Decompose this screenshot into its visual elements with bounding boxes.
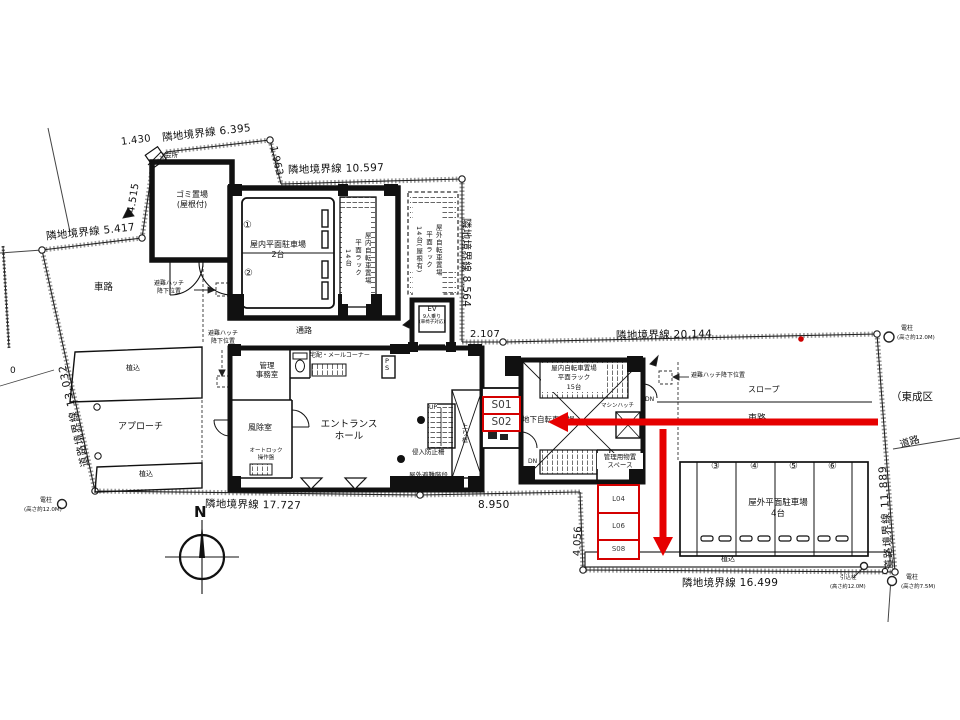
red-dot-marker: [798, 336, 804, 342]
hatch-drop-label-a: 避難ハッチ降下位置: [149, 280, 189, 295]
intrusion-fence-label: 侵入防止柵: [412, 448, 445, 456]
service-pole-height: (高さ約12.0M): [830, 584, 866, 591]
boundary-label-16499: 隣地境界線 16.499: [682, 577, 778, 590]
boundary-label-10597: 隣地境界線 10.597: [288, 162, 384, 178]
bicycle-15-label: 屋内自転車置場平面ラック15台: [541, 364, 607, 392]
dn-label-stair: DN: [528, 458, 537, 466]
planting-label-3: 植込: [721, 555, 735, 564]
pole-height-bottomright: (高さ約7.5M): [901, 584, 935, 591]
stall-number-5: ⑤: [789, 461, 798, 474]
escape-stair-label: 屋外避難階段: [409, 471, 448, 479]
pole-label-left: 電柱: [40, 497, 52, 505]
hatch-drop-label-c: 避難ハッチ降下位置: [691, 372, 745, 380]
pole-label-topright: 電柱: [901, 325, 913, 333]
boundary-label-20144: 隣地境界線 20.144: [616, 328, 712, 343]
marker-label-s08[interactable]: S08: [598, 540, 639, 559]
marker-label-s02[interactable]: S02: [483, 414, 520, 431]
planting-label-2: 植込: [139, 470, 153, 479]
entry-step-label: 上り框: [460, 423, 468, 453]
pole-height-left: (高さ約12.0M): [24, 507, 62, 514]
red-arrow-vertical-head: [653, 537, 673, 556]
boundary-label-17727: 隣地境界線 17.727: [205, 498, 301, 513]
floor-plan-linework: 地下自転車置場 車路: [0, 0, 960, 720]
outdoor-bicycle-label: 屋外自転車置場平面ラック14台(屋根有): [413, 205, 442, 295]
trash-room-label: ゴミ置場(屋根付): [164, 190, 220, 210]
up-stair-label: UP: [429, 404, 437, 412]
indoor-bicycle-label: 屋内自転車置場平面ラック14台: [342, 212, 371, 304]
service-pole-label: 引込柱: [840, 575, 857, 582]
trash-room: [145, 147, 232, 295]
slope-label: スロープ: [748, 385, 780, 395]
junction-box-label: 会所: [165, 151, 178, 159]
pole-height-topright: (高さ約12.0M): [897, 335, 935, 342]
pipe-shaft-label: PS: [385, 358, 393, 372]
planting-label-1: 植込: [126, 364, 140, 373]
compass-icon: [165, 520, 239, 594]
dim-label-8950: 8.950: [478, 499, 510, 512]
hatch-drop-label-b: 避難ハッチ降下位置: [203, 330, 243, 345]
compass-north-label: N: [194, 503, 207, 522]
stall-number-4: ④: [750, 461, 759, 474]
marker-label-l06[interactable]: L06: [598, 513, 639, 540]
approach-label: アプローチ: [118, 422, 163, 433]
stall-number-3: ③: [711, 461, 720, 474]
corridor-label: 通路: [296, 326, 312, 336]
floor-plan-canvas: 地下自転車置場 車路 隣地境界線 6.395 1.430 1.963 隣地境界線…: [0, 0, 960, 720]
outdoor-parking-label: 屋外平面駐車場4台: [728, 498, 828, 519]
marker-label-s01[interactable]: S01: [483, 397, 520, 414]
stall-number-6: ⑥: [828, 461, 837, 474]
dim-label-4056: 4.056: [572, 526, 586, 557]
marker-label-l04[interactable]: L04: [598, 485, 639, 513]
dim-label-2107: 2.107: [470, 329, 500, 342]
autolock-label: オートロック操作盤: [246, 448, 286, 462]
windbreak-room-label: 風除室: [248, 423, 272, 433]
storage-space-label: 管理用物置スペース: [597, 453, 643, 469]
stall-number-2: ②: [244, 268, 253, 281]
stall-number-1: ①: [243, 220, 252, 233]
elevator-label: EV9人乗り(車椅子対応): [414, 305, 450, 326]
entrance-hall-label: エントランスホール: [319, 419, 379, 443]
manager-office-label: 管理事務室: [246, 361, 288, 380]
pole-label-bottomright: 電柱: [906, 574, 918, 582]
ward-road-label: （東成区: [891, 391, 933, 404]
mail-corner-label: 宅配・メールコーナー: [310, 352, 370, 360]
driveway-left-label: 車路: [94, 282, 113, 294]
boundary-label-8564: 隣地境界線 8.564: [459, 218, 472, 307]
dim-label-0: 0: [10, 366, 16, 377]
dn-label-right: DN: [645, 396, 654, 404]
indoor-parking-label: 屋内平面駐車場2台: [228, 240, 328, 260]
machine-hatch-label: マシンハッチ: [601, 403, 634, 410]
